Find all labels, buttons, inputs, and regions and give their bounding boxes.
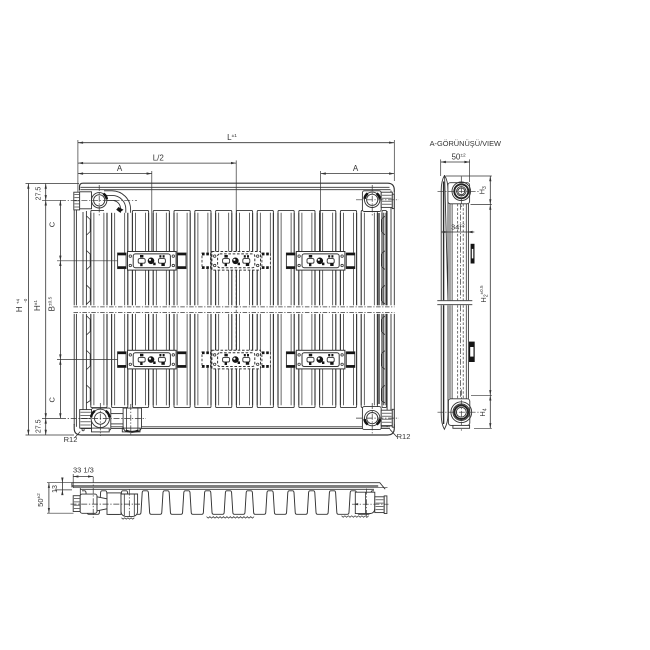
svg-text:A: A — [117, 164, 123, 173]
svg-text:L/2: L/2 — [153, 153, 165, 162]
svg-text:R12: R12 — [64, 435, 78, 444]
svg-text:C: C — [47, 397, 56, 403]
svg-text:A: A — [353, 164, 359, 173]
svg-text:27.5: 27.5 — [35, 187, 42, 201]
svg-text:-0: -0 — [23, 298, 28, 303]
svg-text:33 1/3: 33 1/3 — [73, 466, 94, 475]
svg-text:27.5: 27.5 — [35, 419, 42, 433]
svg-text:R12: R12 — [397, 432, 411, 441]
svg-text:C: C — [47, 221, 56, 227]
svg-text:A-GÖRÜNÜŞÜ/VIEW: A-GÖRÜNÜŞÜ/VIEW — [430, 139, 501, 148]
svg-text:13: 13 — [52, 485, 59, 493]
